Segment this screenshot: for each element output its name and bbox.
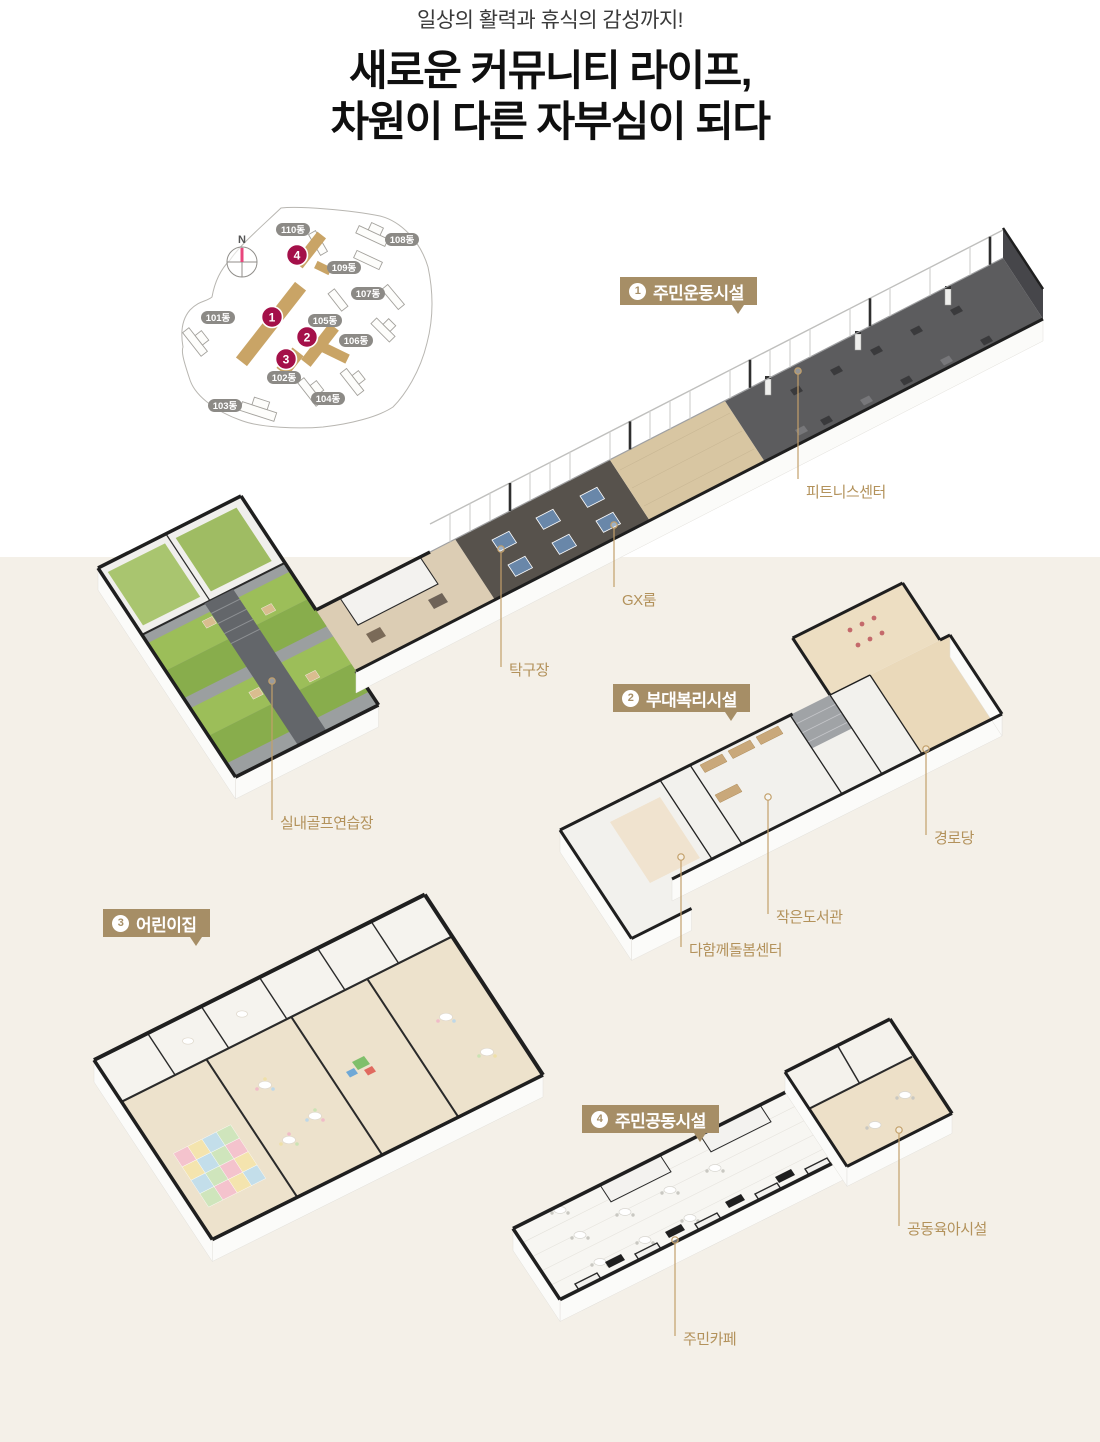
badge-1-number: 1 bbox=[629, 283, 646, 300]
svg-text:2: 2 bbox=[304, 331, 311, 345]
facility-4-plan bbox=[513, 1019, 952, 1322]
pill-108: 108동 bbox=[390, 235, 415, 246]
svg-text:4: 4 bbox=[294, 249, 301, 263]
badge-community: 4 주민공동시설 bbox=[582, 1105, 719, 1133]
label-resident-cafe: 주민카페 bbox=[683, 1328, 736, 1349]
site-marker-2: 2 bbox=[297, 327, 318, 348]
site-marker-3: 3 bbox=[276, 349, 297, 370]
indoor-golf-range bbox=[98, 496, 379, 799]
label-table-tennis: 탁구장 bbox=[509, 659, 549, 680]
pill-109: 109동 bbox=[332, 263, 357, 274]
compass: N bbox=[227, 234, 257, 277]
page-canvas: 일상의 활력과 휴식의 감성까지! 새로운 커뮤니티 라이프, 차원이 다른 자… bbox=[0, 0, 1100, 1442]
badge-3-label: 어린이집 bbox=[136, 911, 197, 936]
label-care-center: 다함께돌봄센터 bbox=[689, 939, 782, 960]
pill-107: 107동 bbox=[356, 289, 381, 300]
badge-2-number: 2 bbox=[622, 690, 639, 707]
site-map: N 101동 102동 103동 104동 105동 106동 107동 108… bbox=[182, 207, 432, 427]
site-marker-1: 1 bbox=[262, 307, 283, 328]
facility-2-plan bbox=[560, 583, 1002, 961]
label-gx-room: GX룸 bbox=[622, 589, 656, 610]
label-indoor-golf: 실내골프연습장 bbox=[280, 812, 373, 833]
pill-104: 104동 bbox=[316, 394, 341, 405]
pill-106: 106동 bbox=[344, 336, 369, 347]
compass-label: N bbox=[238, 234, 246, 246]
badge-4-number: 4 bbox=[591, 1111, 608, 1128]
facility-3-plan bbox=[94, 895, 543, 1262]
pill-103: 103동 bbox=[213, 401, 238, 412]
label-small-library: 작은도서관 bbox=[776, 906, 843, 927]
badge-2-label: 부대복리시설 bbox=[646, 686, 737, 711]
pill-102: 102동 bbox=[272, 373, 297, 384]
svg-text:1: 1 bbox=[269, 311, 276, 325]
badge-4-label: 주민공동시설 bbox=[615, 1107, 706, 1132]
site-marker-4: 4 bbox=[287, 245, 308, 266]
badge-daycare: 3 어린이집 bbox=[103, 909, 210, 937]
label-senior-center: 경로당 bbox=[934, 827, 974, 848]
label-joint-childcare: 공동육아시설 bbox=[907, 1218, 987, 1239]
pill-105: 105동 bbox=[313, 316, 338, 327]
badge-resident-sports: 1 주민운동시설 bbox=[620, 277, 757, 305]
pill-110: 110동 bbox=[281, 225, 305, 236]
label-fitness-center: 피트니스센터 bbox=[806, 481, 886, 502]
badge-welfare: 2 부대복리시설 bbox=[613, 684, 750, 712]
badge-1-label: 주민운동시설 bbox=[653, 279, 744, 304]
badge-3-number: 3 bbox=[112, 915, 129, 932]
svg-text:3: 3 bbox=[283, 353, 290, 367]
pill-101: 101동 bbox=[206, 313, 231, 324]
